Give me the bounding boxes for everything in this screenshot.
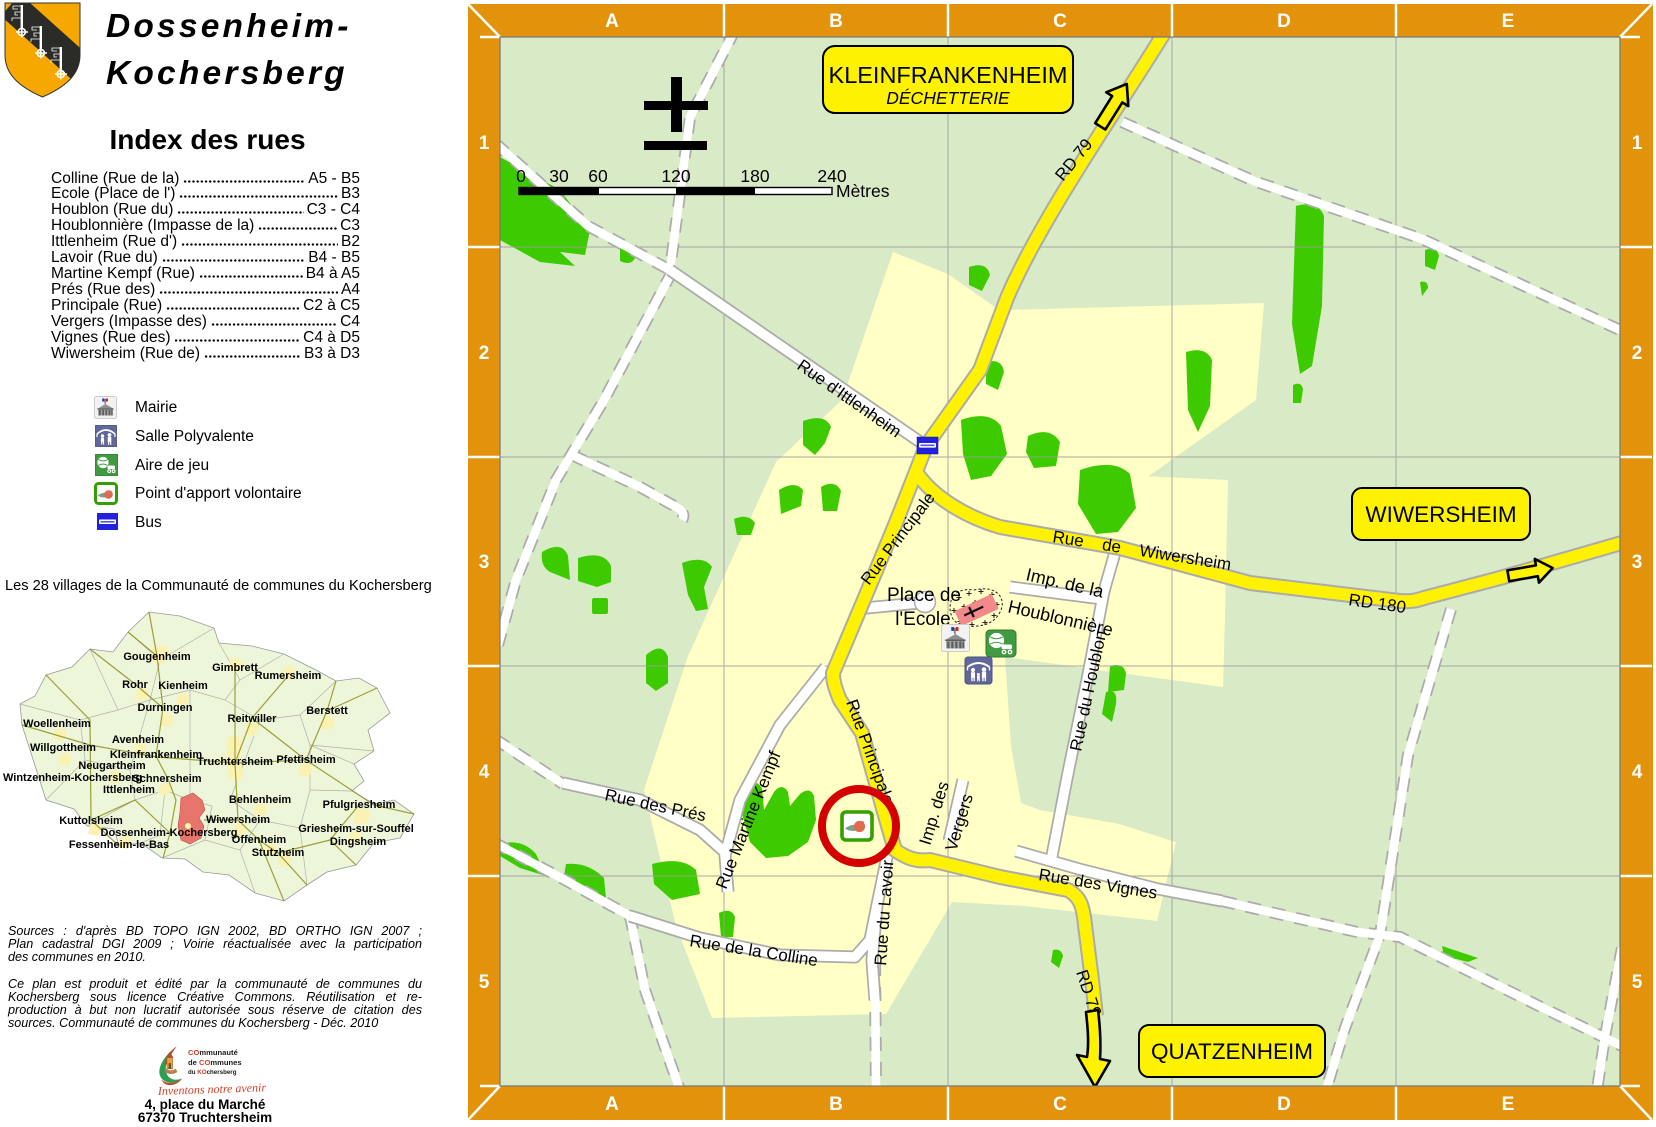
svg-text:de COmmunes: de COmmunes — [188, 1058, 242, 1067]
svg-text:Kuttolsheim: Kuttolsheim — [59, 815, 123, 827]
svg-text:Berstett: Berstett — [306, 705, 348, 717]
svg-text:Willgottheim: Willgottheim — [30, 742, 96, 754]
svg-text:du KOchersberg: du KOchersberg — [188, 1069, 237, 1076]
svg-text:Kienheim: Kienheim — [158, 680, 208, 692]
svg-text:3: 3 — [1632, 552, 1643, 573]
svg-text:A: A — [605, 1094, 619, 1115]
svg-text:5: 5 — [479, 972, 490, 993]
svg-text:KLEINFRANKENHEIM: KLEINFRANKENHEIM — [829, 62, 1068, 88]
svg-text:B: B — [829, 1094, 843, 1115]
svg-text:A: A — [605, 11, 619, 32]
svg-text:E: E — [1502, 11, 1515, 32]
svg-text:Rumersheim: Rumersheim — [255, 670, 322, 682]
svg-text:Neugartheim: Neugartheim — [78, 760, 145, 772]
svg-text:Pfettisheim: Pfettisheim — [276, 754, 336, 766]
svg-text:Gimbrett: Gimbrett — [212, 662, 258, 674]
svg-text:4: 4 — [479, 762, 490, 783]
svg-text:Dingsheim: Dingsheim — [330, 836, 386, 848]
svg-text:Durningen: Durningen — [138, 702, 193, 714]
svg-text:Pfulgriesheim: Pfulgriesheim — [323, 799, 396, 811]
svg-text:Wiwersheim: Wiwersheim — [206, 814, 270, 826]
svg-text:Rohr: Rohr — [122, 679, 148, 691]
svg-text:2: 2 — [479, 343, 490, 364]
svg-text:B: B — [829, 11, 843, 32]
svg-text:180: 180 — [740, 166, 769, 186]
svg-text:Wintzenheim-Kochersberg: Wintzenheim-Kochersberg — [3, 772, 142, 784]
svg-text:Ittlenheim: Ittlenheim — [103, 784, 155, 796]
svg-text:3: 3 — [479, 552, 490, 573]
svg-text:WIWERSHEIM: WIWERSHEIM — [1365, 502, 1516, 527]
svg-text:0: 0 — [516, 166, 526, 186]
svg-text:Stutzheim: Stutzheim — [252, 847, 305, 859]
svg-text:Reitwiller: Reitwiller — [228, 713, 278, 725]
svg-text:C: C — [1053, 11, 1067, 32]
svg-text:D: D — [1277, 1094, 1291, 1115]
svg-text:Offenheim: Offenheim — [232, 834, 287, 846]
svg-text:D: D — [1277, 11, 1291, 32]
svg-text:Fessenheim-le-Bas: Fessenheim-le-Bas — [69, 839, 169, 851]
svg-text:30: 30 — [549, 166, 569, 186]
svg-text:DÉCHETTERIE: DÉCHETTERIE — [886, 88, 1010, 108]
svg-text:Griesheim-sur-Souffel: Griesheim-sur-Souffel — [298, 823, 414, 835]
svg-text:Woellenheim: Woellenheim — [23, 718, 91, 730]
svg-text:C: C — [1053, 1094, 1067, 1115]
svg-text:1: 1 — [1632, 133, 1643, 154]
svg-text:Dossenheim-Kochersberg: Dossenheim-Kochersberg — [101, 827, 238, 839]
svg-text:Avenheim: Avenheim — [112, 734, 164, 746]
svg-text:Gougenheim: Gougenheim — [123, 651, 190, 663]
svg-text:4: 4 — [1632, 762, 1643, 783]
svg-text:COmmunauté: COmmunauté — [188, 1048, 238, 1057]
svg-text:120: 120 — [661, 166, 690, 186]
svg-text:2: 2 — [1632, 343, 1643, 364]
svg-text:Mètres: Mètres — [836, 181, 890, 201]
svg-text:Behlenheim: Behlenheim — [229, 794, 292, 806]
svg-text:QUATZENHEIM: QUATZENHEIM — [1151, 1039, 1313, 1064]
svg-text:60: 60 — [588, 166, 608, 186]
svg-text:Truchtersheim: Truchtersheim — [197, 756, 273, 768]
svg-text:Place de: Place de — [887, 585, 961, 606]
svg-text:1: 1 — [479, 133, 490, 154]
svg-text:Inventons notre avenir: Inventons notre avenir — [157, 1080, 267, 1098]
svg-text:5: 5 — [1632, 972, 1643, 993]
svg-text:E: E — [1502, 1094, 1515, 1115]
